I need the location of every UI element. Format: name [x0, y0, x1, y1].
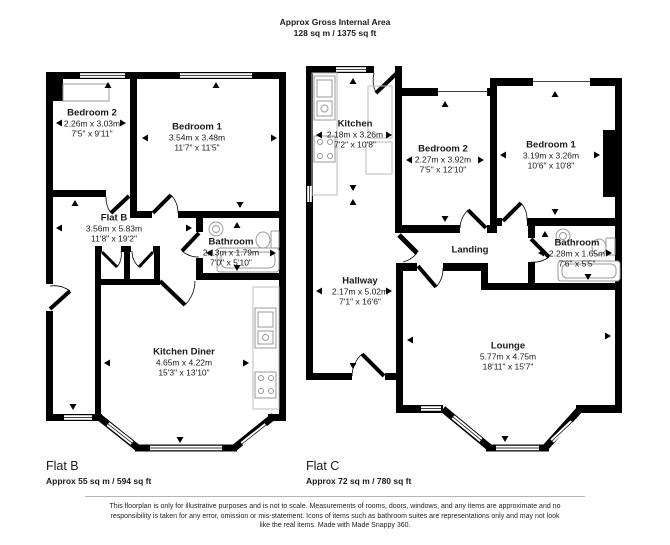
room-dimensions-imperial: 11'8" x 19'2": [86, 234, 142, 244]
room-label-flat-c-bedroom2: Bedroom 2 2.27m x 3.92m 7'5" x 12'10": [415, 144, 471, 175]
disclaimer-text: This floorplan is only for illustrative …: [105, 502, 565, 531]
room-name: Bedroom 1: [523, 140, 579, 151]
measurement-arrow-icon: [594, 152, 600, 159]
door-icon: [352, 354, 384, 376]
flat-c-footer: Flat C Approx 72 sq m / 780 sq ft: [306, 459, 411, 486]
room-name: Kitchen: [327, 119, 383, 130]
measurement-arrow-icon: [120, 120, 126, 127]
room-dimensions-metric: 2.18m x 3.26m: [327, 130, 383, 140]
room-dimensions-imperial: 7'5" x 12'10": [415, 165, 471, 175]
room-name: Bathroom: [203, 237, 259, 248]
room-name: Bedroom 2: [64, 108, 120, 119]
door-icon: [182, 233, 199, 257]
room-dimensions-metric: 5.77m x 4.75m: [480, 352, 536, 362]
flat-c-name: Flat C: [306, 459, 411, 473]
room-label-flat-b-hall: Flat B 3.56m x 5.83m 11'8" x 19'2": [86, 213, 142, 244]
measurement-arrow-icon: [56, 225, 62, 232]
door-icon: [50, 286, 70, 309]
measurement-arrow-icon: [213, 82, 220, 88]
room-label-flat-b-bathroom: Bathroom 2.13m x 1.79m 7'0" x 5'10": [203, 237, 259, 268]
door-icon: [160, 281, 195, 305]
measurement-arrow-icon: [56, 120, 62, 127]
flat-b-area: Approx 55 sq m / 594 sq ft: [46, 476, 151, 486]
measurement-arrow-icon: [500, 152, 506, 159]
room-dimensions-imperial: 18'11" x 15'7": [480, 362, 536, 372]
room-name: Bedroom 2: [415, 144, 471, 155]
measurement-arrow-icon: [442, 101, 449, 107]
door-icon: [503, 203, 527, 221]
room-name: Bedroom 1: [169, 122, 225, 133]
room-name: Kitchen Diner: [153, 347, 215, 358]
measurement-arrow-icon: [605, 333, 611, 340]
room-name: Lounge: [480, 341, 536, 352]
flat-b-bay-window-walls: [99, 416, 274, 449]
measurement-arrow-icon: [72, 200, 79, 206]
measurement-arrow-icon: [104, 360, 110, 367]
room-dimensions-imperial: 10'6" x 10'8": [523, 161, 579, 171]
door-icon: [460, 210, 486, 228]
flat-b-footer: Flat B Approx 55 sq m / 594 sq ft: [46, 459, 151, 486]
stove-icon: [255, 372, 276, 398]
door-icon: [102, 251, 121, 267]
room-dimensions-metric: 3.54m x 3.48m: [169, 133, 225, 143]
room-label-flat-c-bathroom: Bathroom 2.28m x 1.65m 7'6" x 5'5": [549, 238, 605, 269]
room-dimensions-metric: 2.13m x 1.79m: [203, 248, 259, 258]
toilet-icon: [256, 231, 279, 248]
door-icon: [153, 195, 178, 213]
measurement-arrow-icon: [70, 404, 77, 410]
door-icon: [418, 266, 443, 287]
room-dimensions-metric: 4.65m x 4.22m: [153, 358, 215, 368]
door-icon: [399, 235, 417, 262]
room-name: Landing: [452, 245, 489, 256]
measurement-arrow-icon: [316, 288, 322, 295]
measurement-arrow-icon: [406, 157, 412, 164]
sink-unit-icon: [255, 308, 276, 348]
measurement-arrow-icon: [442, 216, 449, 222]
room-label-flat-b-bedroom1: Bedroom 1 3.54m x 3.48m 11'7" x 11'5": [169, 122, 225, 153]
room-name: Bathroom: [549, 238, 605, 249]
room-label-flat-b-kitchen-diner: Kitchen Diner 4.65m x 4.22m 15'3" x 13'1…: [153, 347, 215, 378]
measurement-arrow-icon: [552, 209, 559, 215]
measurement-arrow-icon: [243, 360, 249, 367]
measurement-arrow-icon: [177, 437, 184, 443]
measurement-arrow-icon: [478, 157, 484, 164]
room-dimensions-metric: 2.28m x 1.65m: [549, 249, 605, 259]
measurement-arrow-icon: [186, 225, 192, 232]
measurement-arrow-icon: [237, 202, 244, 208]
footer-divider-line: [85, 496, 585, 497]
sink-unit-icon: [314, 76, 335, 120]
flat-b-name: Flat B: [46, 459, 151, 473]
room-dimensions-metric: 2.17m x 5.02m: [332, 287, 388, 297]
room-label-flat-c-landing: Landing: [452, 245, 489, 256]
room-dimensions-imperial: 15'3" x 13'10": [153, 368, 215, 378]
room-dimensions-imperial: 7'6" x 5'5": [549, 259, 605, 269]
measurement-arrow-icon: [350, 199, 357, 205]
room-dimensions-imperial: 7'1" x 16'6": [332, 297, 388, 307]
measurement-arrow-icon: [350, 78, 357, 84]
measurement-arrow-icon: [350, 185, 357, 191]
door-icon: [373, 72, 398, 93]
door-icon: [531, 239, 549, 262]
room-dimensions-imperial: 7'2" x 10'8": [327, 140, 383, 150]
room-label-flat-c-kitchen: Kitchen 2.18m x 3.26m 7'2" x 10'8": [327, 119, 383, 150]
door-icon: [132, 251, 153, 267]
measurement-arrow-icon: [350, 363, 357, 369]
room-label-flat-c-lounge: Lounge 5.77m x 4.75m 18'11" x 15'7": [480, 341, 536, 372]
room-label-flat-c-bedroom1: Bedroom 1 3.19m x 3.26m 10'6" x 10'8": [523, 140, 579, 171]
room-dimensions-metric: 2.26m x 3.03m: [64, 119, 120, 129]
measurement-arrow-icon: [271, 135, 277, 142]
room-label-flat-b-bedroom2: Bedroom 2 2.26m x 3.03m 7'5" x 9'11": [64, 108, 120, 139]
measurement-arrow-icon: [386, 132, 392, 139]
measurement-arrow-icon: [542, 231, 549, 237]
chimney-breast: [603, 130, 622, 197]
measurement-arrow-icon: [407, 337, 413, 344]
room-dimensions-imperial: 7'0" x 5'10": [203, 258, 259, 268]
room-dimensions-imperial: 7'5" x 9'11": [64, 129, 120, 139]
measurement-arrow-icon: [234, 222, 241, 228]
room-name: Flat B: [86, 213, 142, 224]
room-dimensions-metric: 3.19m x 3.26m: [523, 151, 579, 161]
room-dimensions-metric: 2.27m x 3.92m: [415, 155, 471, 165]
door-icon: [106, 196, 129, 213]
room-label-flat-c-hallway: Hallway 2.17m x 5.02m 7'1" x 16'6": [332, 276, 388, 307]
flat-c-area: Approx 72 sq m / 780 sq ft: [306, 476, 411, 486]
measurement-arrow-icon: [142, 135, 148, 142]
measurement-arrow-icon: [552, 91, 559, 97]
room-name: Hallway: [332, 276, 388, 287]
wardrobe-icon: [63, 84, 109, 101]
room-dimensions-imperial: 11'7" x 11'5": [169, 143, 225, 153]
room-dimensions-metric: 3.56m x 5.83m: [86, 224, 142, 234]
measurement-arrow-icon: [502, 436, 509, 442]
